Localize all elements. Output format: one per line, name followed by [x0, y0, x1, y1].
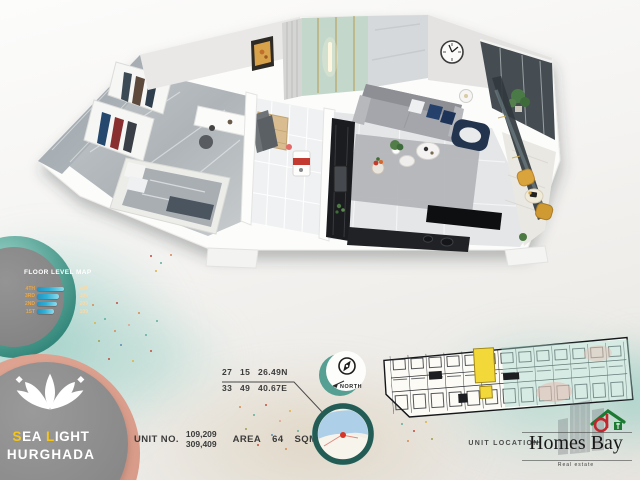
flyer-page: FLOOR LEVEL MAP 4TH 409 3RD 309 2ND 209 …	[0, 0, 640, 480]
water-heater	[293, 151, 310, 176]
floor-level-row: 4TH 409	[22, 285, 88, 293]
north-label: NORTH	[340, 384, 362, 390]
floor-bar	[37, 302, 57, 307]
longitude: 33 49 40.67E	[222, 383, 288, 399]
oven	[334, 166, 347, 192]
picture-frame	[251, 36, 274, 71]
lotus-icon	[8, 372, 92, 422]
mint-panel-wall	[302, 16, 368, 96]
unit-info: UNIT NO. 109,209 309,409 AREA 64 SQM	[134, 429, 317, 449]
paint-speckles	[235, 400, 237, 402]
coordinates: 27 15 26.49N 33 49 40.67E	[222, 367, 288, 399]
floor-number: 209	[80, 301, 88, 307]
unit-number-bottom: 309,409	[186, 439, 217, 449]
floor-level-row: 3RD 309	[22, 293, 88, 301]
compass: NORTH	[318, 347, 376, 401]
slat-panel-wall	[282, 18, 302, 100]
unit-no-label: UNIT NO.	[134, 434, 179, 445]
floor-bar	[37, 294, 59, 299]
area-info: AREA 64 SQM	[233, 434, 318, 445]
floor-level-map-title: FLOOR LEVEL MAP	[24, 269, 92, 276]
desk-chair	[199, 135, 213, 149]
side-step	[505, 246, 548, 266]
developer-name: Homes Bay	[520, 432, 632, 455]
bathroom	[249, 98, 330, 236]
siteplan-dark-unit	[429, 371, 442, 380]
floor-level-row: 1ST 109	[22, 308, 88, 316]
floor-number: 409	[80, 286, 88, 292]
floor-label: 4TH	[22, 286, 35, 292]
area-label: AREA	[233, 434, 262, 445]
wall-clock	[441, 41, 463, 63]
siteplan-dark-unit	[503, 372, 519, 380]
floor-plan-render	[0, 0, 640, 310]
brand-name: SEA LIGHT	[0, 429, 124, 444]
floor-bar	[37, 287, 64, 292]
floor-label: 2ND	[22, 301, 35, 307]
logo-rule-bottom	[522, 460, 632, 461]
area-value: 64	[272, 434, 283, 445]
floor-number: 109	[80, 309, 88, 315]
siteplan-dark-unit	[458, 393, 468, 403]
floor-label: 3RD	[22, 293, 35, 299]
sink	[441, 238, 453, 246]
soap-bottle	[286, 144, 292, 150]
developer-logo: Homes Bay Real estate	[520, 406, 640, 480]
developer-tagline: Real estate	[520, 462, 632, 468]
balcony-table	[525, 189, 543, 203]
latitude: 27 15 26.49N	[222, 367, 288, 383]
unit-numbers: 109,209 309,409	[186, 429, 217, 449]
floor-level-row: 2ND 209	[22, 300, 88, 308]
unit-number-top: 109,209	[186, 429, 217, 439]
balcony-plant	[519, 233, 527, 241]
entry-step	[206, 248, 258, 268]
floor-number: 309	[80, 293, 88, 299]
brand-city: HURGHADA	[0, 447, 128, 462]
floor-level-rows: 4TH 409 3RD 309 2ND 209 1ST 109	[22, 285, 88, 315]
location-pin	[340, 432, 346, 438]
floor-label: 1ST	[22, 309, 35, 315]
floor-bar	[37, 309, 54, 314]
location-minimap	[306, 398, 380, 470]
